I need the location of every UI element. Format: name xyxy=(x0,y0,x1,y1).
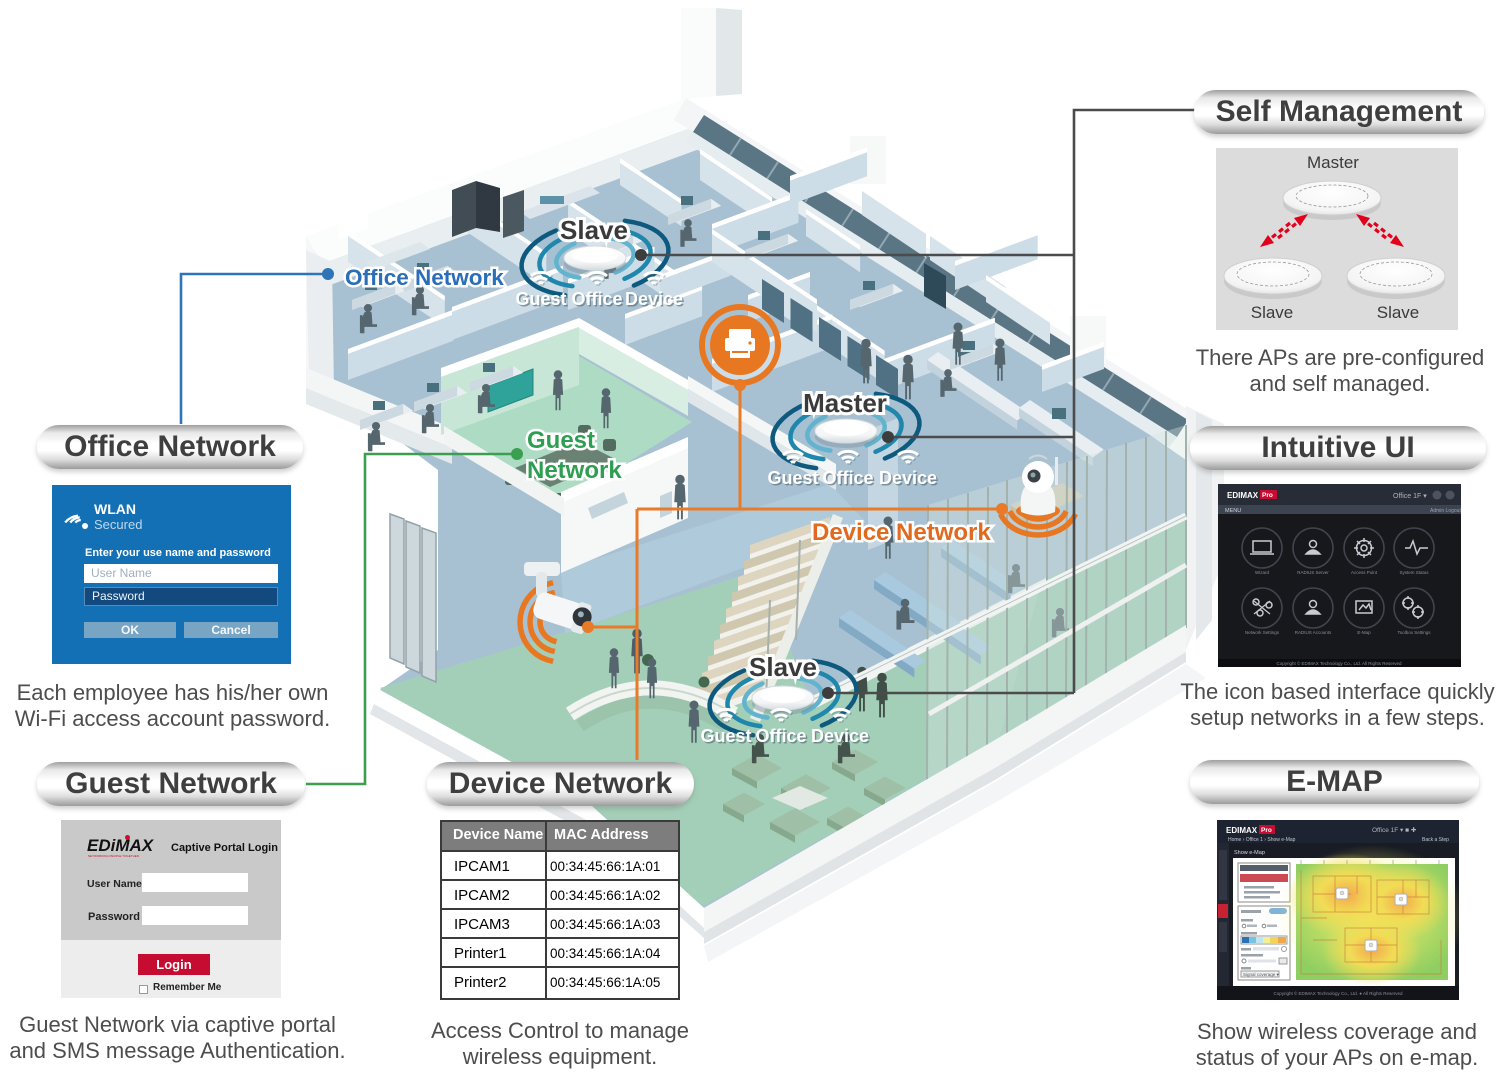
svg-text:Copyright © EDIMAX Technology: Copyright © EDIMAX Technology Co., Ltd. … xyxy=(1273,990,1403,996)
svg-text:RADIUS Server: RADIUS Server xyxy=(1297,570,1329,575)
svg-text:Pro: Pro xyxy=(1262,492,1273,499)
svg-text:Access Point: Access Point xyxy=(1351,570,1378,575)
svg-text:EDIMAX: EDIMAX xyxy=(1226,826,1258,835)
svg-text:Wizard: Wizard xyxy=(1255,570,1269,575)
svg-text:Office 1F ▾ ■ ✚: Office 1F ▾ ■ ✚ xyxy=(1372,826,1417,834)
svg-text:Office Network: Office Network xyxy=(345,265,504,290)
svg-text:Office: Office xyxy=(755,726,806,746)
svg-text:Slave: Slave xyxy=(1377,303,1420,322)
svg-text:Master: Master xyxy=(803,388,887,418)
svg-text:Office: Office xyxy=(571,289,622,309)
svg-text:Slave: Slave xyxy=(560,215,628,245)
svg-text:Signal coverage ▾: Signal coverage ▾ xyxy=(1243,972,1280,977)
svg-text:Show e-Map: Show e-Map xyxy=(1234,850,1265,856)
svg-text:Office: Office xyxy=(822,468,873,488)
svg-text:System Status: System Status xyxy=(1399,570,1429,575)
svg-text:Guest: Guest xyxy=(527,427,595,454)
svg-text:Guest: Guest xyxy=(700,726,751,746)
svg-text:RADIUS Accounts: RADIUS Accounts xyxy=(1295,630,1332,635)
svg-text:Guest: Guest xyxy=(767,468,818,488)
svg-text:Toolbox Settings: Toolbox Settings xyxy=(1397,630,1431,635)
svg-text:Pro: Pro xyxy=(1261,827,1272,834)
svg-text:Network: Network xyxy=(527,457,622,484)
svg-text:Admin Logout: Admin Logout xyxy=(1430,508,1461,514)
svg-text:Device Network: Device Network xyxy=(812,519,991,546)
svg-text:Guest: Guest xyxy=(515,289,566,309)
svg-text:Device: Device xyxy=(625,289,683,309)
svg-text:Slave: Slave xyxy=(749,652,817,682)
svg-text:Home › Office 1 › Show e-Map: Home › Office 1 › Show e-Map xyxy=(1228,837,1296,843)
svg-text:E-Map: E-Map xyxy=(1357,630,1371,635)
svg-text:Copyright © EDIMAX Technology: Copyright © EDIMAX Technology Co., Ltd. … xyxy=(1276,660,1402,666)
svg-text:EDIMAX: EDIMAX xyxy=(1227,491,1259,500)
svg-text:Office 1F ▾: Office 1F ▾ xyxy=(1393,493,1427,500)
svg-text:Network Settings: Network Settings xyxy=(1245,630,1280,635)
svg-text:Slave: Slave xyxy=(1251,303,1294,322)
svg-text:MENU: MENU xyxy=(1225,508,1241,514)
svg-text:Device: Device xyxy=(811,726,869,746)
svg-text:Back a Step: Back a Step xyxy=(1422,837,1449,843)
svg-text:Device: Device xyxy=(879,468,937,488)
svg-text:Master: Master xyxy=(1307,153,1359,172)
